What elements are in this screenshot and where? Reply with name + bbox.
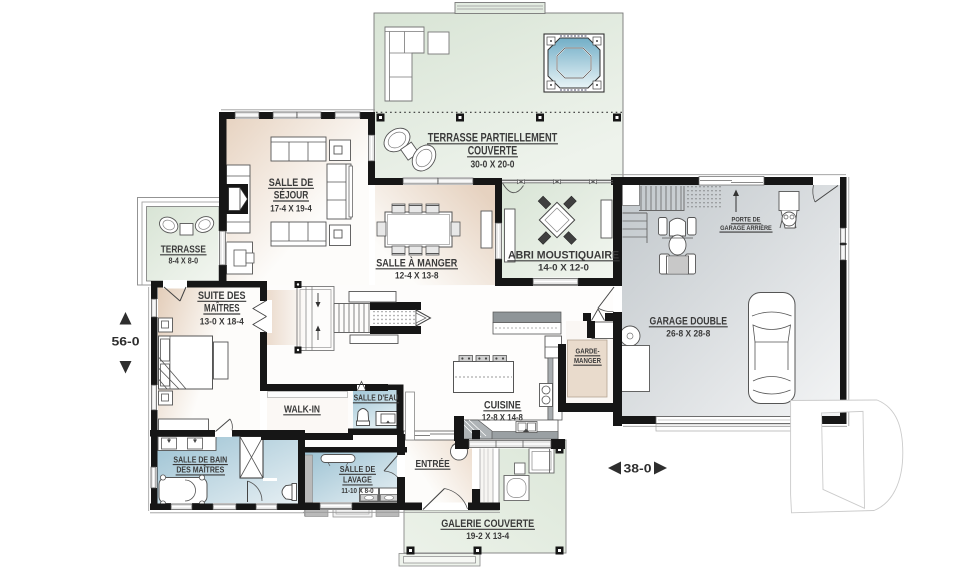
svg-text:11-10 X 8-0: 11-10 X 8-0 (341, 486, 373, 495)
svg-text:LAVAGE: LAVAGE (343, 475, 372, 485)
svg-text:COUVERTE: COUVERTE (468, 145, 518, 158)
svg-text:SÉJOUR: SÉJOUR (274, 189, 309, 202)
svg-text:SALLE DE BAIN: SALLE DE BAIN (173, 454, 227, 464)
svg-text:CUISINE: CUISINE (484, 400, 521, 412)
svg-text:ENTRÉE: ENTRÉE (415, 457, 450, 470)
svg-text:MANGER: MANGER (574, 356, 602, 365)
svg-text:30-0 X 20-0: 30-0 X 20-0 (471, 160, 515, 171)
svg-text:MAÎTRES: MAÎTRES (204, 302, 240, 315)
svg-text:19-2 X 13-4: 19-2 X 13-4 (466, 531, 510, 541)
svg-text:13-0 X 18-4: 13-0 X 18-4 (200, 316, 245, 326)
svg-text:17-4 X 19-4: 17-4 X 19-4 (270, 203, 312, 213)
svg-text:GARDE-: GARDE- (576, 347, 601, 356)
svg-text:56-0: 56-0 (112, 335, 140, 349)
svg-text:26-8 X 28-8: 26-8 X 28-8 (666, 329, 710, 339)
svg-text:GARAGE ARRIÈRE: GARAGE ARRIÈRE (720, 223, 772, 232)
svg-text:ABRI MOUSTIQUAIRE: ABRI MOUSTIQUAIRE (508, 250, 619, 262)
svg-text:12-8 X 14-8: 12-8 X 14-8 (482, 413, 523, 423)
svg-text:GARAGE DOUBLE: GARAGE DOUBLE (650, 316, 728, 328)
svg-text:WALK-IN: WALK-IN (284, 405, 320, 416)
svg-text:SALLE DE: SALLE DE (269, 177, 314, 189)
svg-text:14-0 X 12-0: 14-0 X 12-0 (538, 263, 589, 273)
svg-text:8-4 X 8-0: 8-4 X 8-0 (169, 256, 199, 266)
svg-text:DES MAÎTRES: DES MAÎTRES (176, 464, 224, 475)
svg-text:TERRASSE PARTIELLEMENT: TERRASSE PARTIELLEMENT (428, 132, 558, 145)
svg-text:TERRASSE: TERRASSE (161, 245, 206, 256)
svg-text:12-4 X 13-8: 12-4 X 13-8 (395, 271, 439, 281)
svg-text:SALLE DE: SALLE DE (340, 464, 376, 474)
svg-text:SUITE DES: SUITE DES (198, 290, 246, 302)
svg-text:SALLE À MANGER: SALLE À MANGER (376, 257, 457, 270)
svg-text:SALLE D'EAU: SALLE D'EAU (354, 394, 399, 403)
svg-text:38-0: 38-0 (624, 462, 652, 476)
svg-text:GALERIE COUVERTE: GALERIE COUVERTE (441, 518, 534, 530)
svg-text:PORTE DE: PORTE DE (732, 217, 761, 224)
